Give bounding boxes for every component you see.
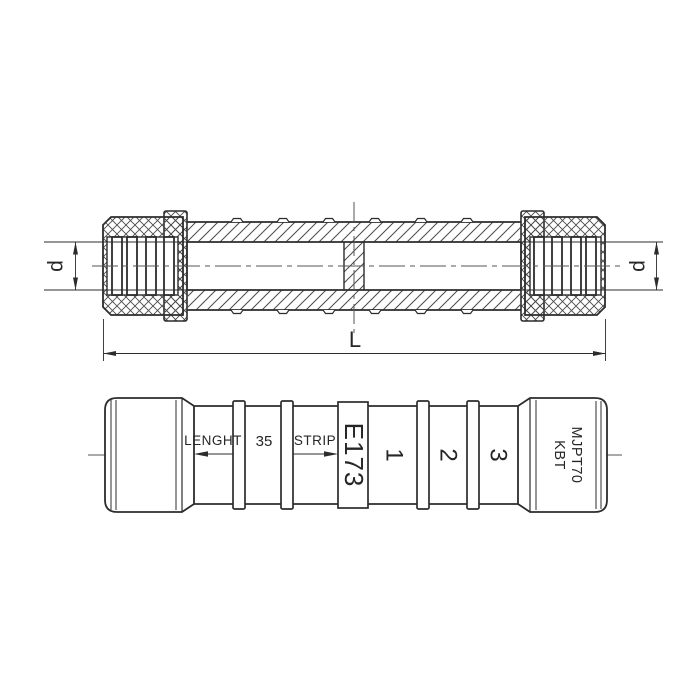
dim-arrow-right — [593, 351, 606, 356]
dim-diameter-right: d — [627, 242, 660, 290]
dim-length: L — [104, 319, 606, 361]
dim-arrow-down — [73, 278, 78, 291]
marking-section-1: 1 — [381, 448, 408, 461]
drawing-page: d d L — [0, 0, 700, 700]
technical-drawing: d d L — [0, 0, 700, 700]
strip-arrow — [293, 451, 338, 457]
length-arrow — [194, 451, 233, 457]
ring-2 — [281, 401, 293, 509]
section-view: d d L — [44, 202, 663, 361]
side-view: LENGHT 35 STRIP E173 1 2 3 KBT MJPT70 — [88, 398, 622, 512]
marking-section-2: 2 — [435, 448, 462, 461]
marking-lenght: LENGHT — [184, 433, 242, 448]
dim-diameter-left: d — [45, 242, 79, 290]
dim-label-length: L — [349, 327, 361, 352]
ring-4 — [467, 401, 479, 509]
arrow-right-icon — [324, 451, 338, 457]
dim-label-d-left: d — [45, 260, 68, 272]
dim-arrow-left — [104, 351, 117, 356]
marking-section-3: 3 — [485, 448, 512, 461]
marking-strip: STRIP — [294, 433, 336, 448]
left-cap — [105, 398, 194, 512]
marking-brand: KBT — [551, 440, 567, 470]
marking-strip-length: 35 — [256, 433, 273, 450]
marking-product-code: E173 — [339, 423, 369, 488]
marking-model: MJPT70 — [568, 427, 584, 484]
dim-arrow-up — [73, 242, 78, 255]
ring-3 — [417, 401, 429, 509]
ring-1 — [233, 401, 245, 509]
dim-label-d-right: d — [627, 260, 650, 272]
arrow-left-icon — [194, 451, 208, 457]
dim-arrow-up — [654, 242, 659, 255]
dim-arrow-down — [654, 278, 659, 291]
